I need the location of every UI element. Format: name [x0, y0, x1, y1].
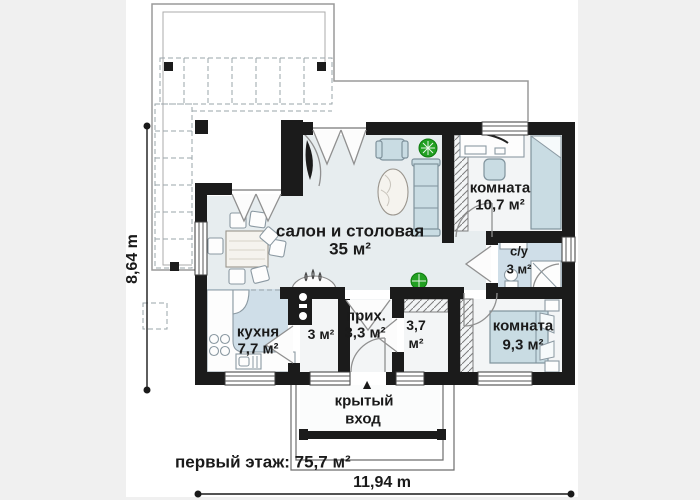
entrance-label-line2: вход: [345, 412, 381, 427]
hallway-name: прих.: [346, 309, 386, 324]
sink-basin: [239, 357, 249, 366]
armchair-arm: [402, 141, 408, 158]
window-bathroom: [562, 237, 575, 262]
kitchen-name: кухня: [237, 325, 279, 340]
entrance-sidelight: [310, 372, 350, 385]
dining-chair: [229, 269, 245, 284]
terrace-post: [170, 262, 179, 271]
room-bottom-name: комната: [493, 319, 553, 334]
armchair: [379, 139, 405, 160]
room-bottom-area: 9,3 м²: [502, 338, 543, 353]
room-top-area: 10,7 м²: [475, 198, 524, 213]
wardrobe-unit: м²: [408, 336, 423, 350]
window-kitchen: [225, 372, 275, 385]
kitchen-area: 7,7 м²: [237, 342, 278, 357]
living-room-area: 35 м²: [329, 241, 371, 258]
terrace-post: [317, 62, 326, 71]
entrance-arrow-icon: ▲: [360, 377, 374, 391]
nightstand: [545, 300, 559, 311]
room-top-name: комната: [470, 181, 530, 196]
armchair-arm: [376, 141, 382, 158]
entrance-sidelight: [396, 372, 424, 385]
window-living: [195, 222, 207, 275]
floor-total-label: первый этаж: 75,7 м²: [175, 454, 351, 471]
cooktop-burner: [210, 335, 219, 344]
porch-step-edge: [304, 431, 439, 439]
window-room-bottom: [478, 372, 532, 385]
bathroom-area: 3 м²: [507, 263, 532, 276]
living-room-name: салон и столовая: [276, 223, 424, 240]
rug: [378, 169, 408, 215]
sofa: [414, 164, 438, 230]
window-room-top: [482, 122, 528, 135]
dining-chair: [251, 265, 270, 283]
nightstand: [545, 361, 559, 372]
wardrobe-area: 3,7: [406, 318, 425, 332]
floor-plan-screenshot: салон и столовая 35 м² комната 10,7 м² с…: [0, 0, 700, 500]
height-dimension-label: 8,64 m: [125, 234, 141, 284]
cooktop-burner: [221, 335, 230, 344]
entrance-label-line1: крытый: [335, 394, 394, 409]
width-dimension-label: 11,94 m: [353, 475, 411, 491]
terrace-post: [164, 62, 173, 71]
chimney-flue: [294, 289, 312, 325]
cooktop-burner: [221, 347, 230, 356]
dining-chair: [208, 238, 223, 254]
pantry-area: 3 м²: [308, 327, 335, 341]
desk-monitor: [465, 146, 486, 154]
shelf-hatch: [404, 299, 448, 312]
hallway-area: 3,3 м²: [344, 326, 385, 341]
cooktop-burner: [210, 347, 219, 356]
desk-item: [495, 148, 505, 154]
wardrobe-hatch: [460, 299, 473, 377]
office-chair: [484, 159, 505, 180]
bathroom-name: с/у: [510, 245, 528, 258]
